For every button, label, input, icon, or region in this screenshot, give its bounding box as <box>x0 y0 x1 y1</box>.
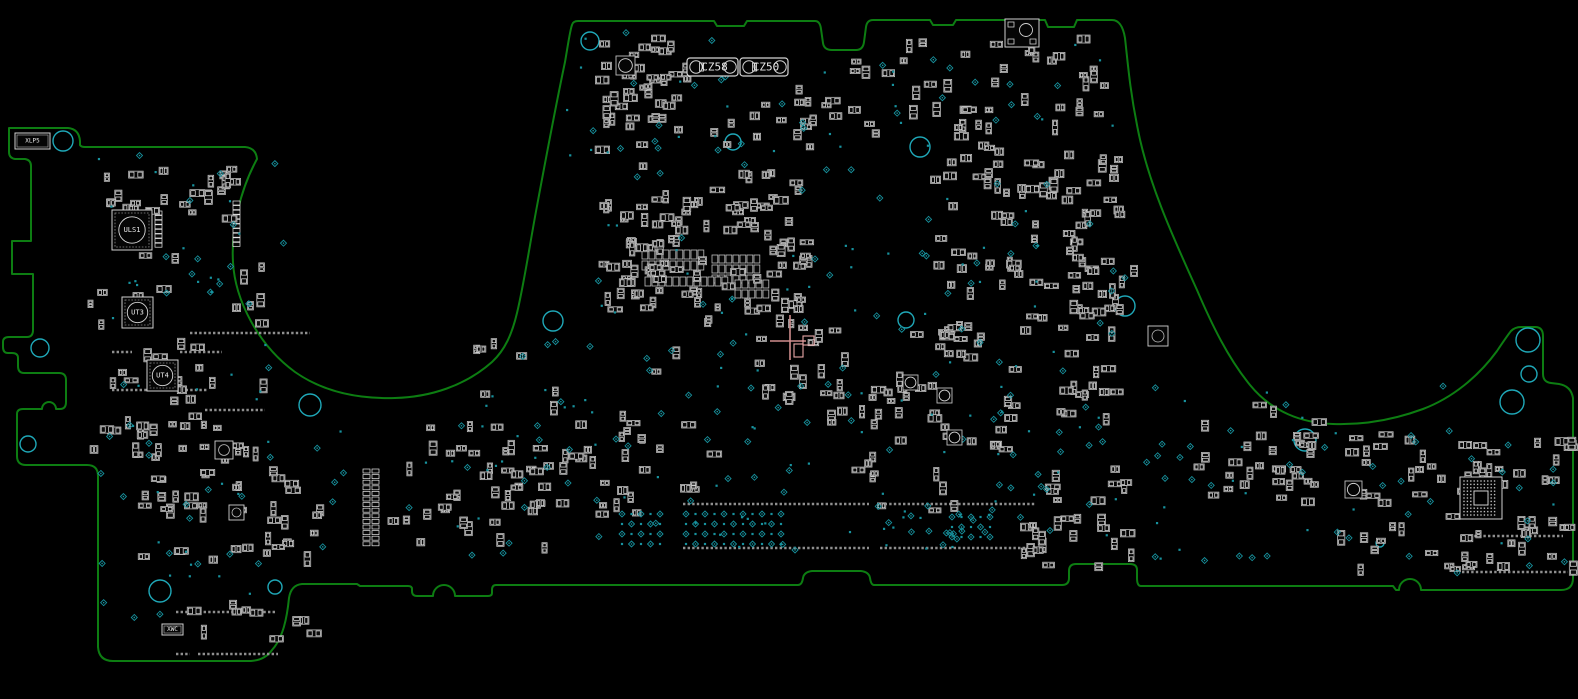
component[interactable] <box>1462 552 1468 562</box>
test-point[interactable] <box>217 281 223 287</box>
test-point[interactable] <box>1099 59 1101 61</box>
component[interactable] <box>940 482 947 495</box>
component[interactable] <box>622 450 629 462</box>
component[interactable] <box>649 265 662 271</box>
component[interactable] <box>1346 449 1359 456</box>
component[interactable] <box>601 62 611 69</box>
component[interactable] <box>826 97 841 104</box>
component[interactable] <box>1349 436 1363 441</box>
component[interactable] <box>693 271 700 282</box>
test-point[interactable] <box>979 536 981 538</box>
test-point[interactable] <box>740 511 746 517</box>
component[interactable] <box>1104 197 1117 202</box>
test-point[interactable] <box>584 399 586 401</box>
test-point[interactable] <box>1249 555 1255 561</box>
test-point[interactable] <box>136 284 138 286</box>
component[interactable] <box>788 238 795 251</box>
component[interactable] <box>862 66 870 78</box>
component-cz50[interactable]: CZ50 <box>740 58 788 76</box>
component[interactable] <box>1497 563 1509 571</box>
component[interactable] <box>269 467 277 476</box>
component[interactable] <box>961 154 972 161</box>
component[interactable] <box>1194 464 1204 470</box>
component[interactable] <box>1077 35 1090 43</box>
test-point[interactable] <box>99 560 105 566</box>
component[interactable] <box>629 242 634 256</box>
component[interactable] <box>715 304 720 311</box>
component[interactable] <box>954 336 967 341</box>
component[interactable] <box>233 484 240 490</box>
component[interactable] <box>984 145 994 150</box>
test-point[interactable] <box>267 454 273 460</box>
test-point[interactable] <box>829 133 831 135</box>
component[interactable] <box>1301 498 1314 506</box>
component[interactable] <box>992 78 999 87</box>
component[interactable] <box>1476 531 1481 538</box>
test-point[interactable] <box>157 611 163 617</box>
component[interactable] <box>1508 540 1515 547</box>
test-point[interactable] <box>607 151 609 153</box>
test-point[interactable] <box>860 392 862 394</box>
test-point[interactable] <box>621 543 623 545</box>
test-point[interactable] <box>694 513 696 515</box>
component[interactable] <box>1058 325 1067 330</box>
test-point[interactable] <box>648 541 654 547</box>
component[interactable] <box>619 279 631 287</box>
component[interactable] <box>993 161 1003 168</box>
inductor-component[interactable] <box>947 430 962 445</box>
test-point[interactable] <box>1264 553 1270 559</box>
test-point[interactable] <box>931 414 933 416</box>
component[interactable] <box>644 84 652 89</box>
component[interactable] <box>1005 414 1017 421</box>
component[interactable] <box>1307 450 1314 458</box>
test-point[interactable] <box>700 301 706 307</box>
component[interactable] <box>628 492 634 502</box>
test-point[interactable] <box>137 153 143 159</box>
test-point[interactable] <box>1028 430 1030 432</box>
component[interactable] <box>1111 466 1120 473</box>
component[interactable] <box>1115 211 1125 217</box>
component-ic[interactable] <box>1460 477 1502 519</box>
test-point[interactable] <box>704 543 706 545</box>
component[interactable] <box>954 133 968 140</box>
test-point[interactable] <box>969 415 971 417</box>
component[interactable] <box>1076 107 1083 116</box>
component[interactable] <box>690 201 698 207</box>
component[interactable] <box>895 408 902 418</box>
component[interactable] <box>706 316 712 323</box>
component[interactable] <box>931 176 941 183</box>
test-point[interactable] <box>584 38 586 40</box>
component[interactable] <box>1065 350 1078 357</box>
component[interactable] <box>1553 455 1559 465</box>
component[interactable] <box>1100 83 1108 89</box>
test-point[interactable] <box>729 296 735 302</box>
component[interactable] <box>765 230 771 240</box>
component[interactable] <box>161 506 173 511</box>
test-point[interactable] <box>1008 102 1014 108</box>
test-point[interactable] <box>908 529 914 535</box>
component[interactable] <box>623 260 632 267</box>
test-point[interactable] <box>989 526 991 528</box>
component[interactable] <box>1062 196 1073 204</box>
test-point[interactable] <box>239 493 245 499</box>
component[interactable] <box>271 502 276 516</box>
test-point[interactable] <box>1115 498 1117 500</box>
component[interactable] <box>704 220 709 232</box>
component[interactable] <box>429 441 437 455</box>
component[interactable] <box>201 625 206 639</box>
test-point[interactable] <box>960 516 962 518</box>
component[interactable] <box>1474 443 1487 449</box>
component[interactable] <box>919 39 927 47</box>
test-point[interactable] <box>339 430 341 432</box>
test-point[interactable] <box>458 423 464 429</box>
test-point[interactable] <box>506 540 512 546</box>
test-point[interactable] <box>580 66 582 68</box>
test-point[interactable] <box>715 147 721 153</box>
component[interactable] <box>502 502 514 509</box>
component[interactable] <box>569 453 584 459</box>
test-point[interactable] <box>1552 503 1554 505</box>
test-point[interactable] <box>778 511 784 517</box>
component[interactable] <box>955 124 963 130</box>
test-point[interactable] <box>849 531 851 533</box>
component[interactable] <box>115 190 122 201</box>
test-point[interactable] <box>1008 251 1014 257</box>
test-point[interactable] <box>721 312 723 314</box>
test-point[interactable] <box>638 531 644 537</box>
component[interactable] <box>530 468 544 475</box>
component[interactable] <box>490 519 500 525</box>
test-point[interactable] <box>1098 417 1100 419</box>
component[interactable] <box>265 532 270 545</box>
component[interactable] <box>1308 442 1316 450</box>
test-point[interactable] <box>1232 480 1234 482</box>
component[interactable] <box>850 68 860 73</box>
component[interactable] <box>900 58 907 64</box>
test-point[interactable] <box>1053 351 1055 353</box>
component[interactable] <box>909 105 917 119</box>
test-point[interactable] <box>634 174 640 180</box>
component[interactable] <box>645 90 652 98</box>
component[interactable] <box>652 369 661 374</box>
component[interactable] <box>186 395 195 403</box>
test-point[interactable] <box>892 71 894 73</box>
component-uls1[interactable]: ULS1 <box>112 210 152 250</box>
test-point[interactable] <box>595 278 601 284</box>
test-point[interactable] <box>779 101 785 107</box>
component[interactable] <box>776 315 783 327</box>
component[interactable] <box>1080 313 1094 319</box>
test-point[interactable] <box>851 248 853 250</box>
component[interactable] <box>230 600 237 609</box>
component[interactable] <box>227 166 237 172</box>
test-point[interactable] <box>939 95 945 101</box>
component[interactable] <box>169 421 177 426</box>
component[interactable] <box>647 75 659 80</box>
component[interactable] <box>533 445 547 451</box>
component[interactable] <box>257 294 265 307</box>
component[interactable] <box>427 425 435 431</box>
component[interactable] <box>497 534 504 547</box>
component[interactable] <box>1120 480 1131 486</box>
component[interactable] <box>652 241 664 247</box>
test-point[interactable] <box>1033 494 1035 496</box>
component[interactable] <box>754 274 761 283</box>
component[interactable] <box>600 202 608 209</box>
component[interactable] <box>1519 542 1526 555</box>
component[interactable] <box>663 102 675 109</box>
component[interactable] <box>1115 156 1123 162</box>
component[interactable] <box>241 270 248 284</box>
test-point[interactable] <box>572 405 574 407</box>
test-point[interactable] <box>625 443 631 449</box>
test-point[interactable] <box>553 339 559 345</box>
component[interactable] <box>259 263 265 272</box>
component[interactable] <box>1293 432 1300 440</box>
component[interactable] <box>511 471 523 478</box>
component[interactable] <box>1070 300 1078 313</box>
test-point[interactable] <box>877 195 883 201</box>
test-point[interactable] <box>1000 386 1002 388</box>
test-point[interactable] <box>895 105 897 107</box>
test-point[interactable] <box>1352 508 1354 510</box>
test-point[interactable] <box>723 543 725 545</box>
test-point[interactable] <box>469 552 475 558</box>
test-point[interactable] <box>1074 44 1076 46</box>
test-point[interactable] <box>730 340 736 346</box>
test-point[interactable] <box>182 247 184 249</box>
test-point[interactable] <box>804 419 810 425</box>
component[interactable] <box>637 204 648 209</box>
component[interactable] <box>242 607 251 613</box>
test-point[interactable] <box>451 460 453 462</box>
test-point[interactable] <box>979 516 981 518</box>
component[interactable] <box>699 257 707 265</box>
test-point[interactable] <box>158 541 160 543</box>
component[interactable] <box>871 420 877 429</box>
test-point[interactable] <box>983 247 985 249</box>
test-point[interactable] <box>1079 426 1081 428</box>
component[interactable] <box>806 144 813 150</box>
test-point[interactable] <box>968 534 974 540</box>
component[interactable] <box>772 289 779 301</box>
component[interactable] <box>795 99 804 106</box>
component[interactable] <box>1053 120 1058 135</box>
test-point[interactable] <box>887 447 893 453</box>
test-point[interactable] <box>1025 210 1027 212</box>
test-point[interactable] <box>1152 554 1158 560</box>
component[interactable] <box>653 276 666 283</box>
test-point[interactable] <box>330 499 336 505</box>
component[interactable] <box>204 191 212 205</box>
component[interactable] <box>467 421 472 431</box>
component[interactable] <box>739 170 749 178</box>
component[interactable] <box>138 554 149 560</box>
component[interactable] <box>417 539 425 546</box>
test-point[interactable] <box>714 135 716 137</box>
test-point[interactable] <box>781 489 787 495</box>
test-point[interactable] <box>146 440 152 446</box>
test-point[interactable] <box>996 359 1002 365</box>
test-point[interactable] <box>1177 454 1183 460</box>
component[interactable] <box>1091 70 1098 83</box>
component[interactable] <box>600 480 609 485</box>
component[interactable] <box>668 41 674 52</box>
component[interactable] <box>928 415 942 422</box>
test-point[interactable] <box>848 167 854 173</box>
component[interactable] <box>150 424 157 435</box>
test-point[interactable] <box>1398 478 1404 484</box>
component[interactable] <box>906 39 912 52</box>
component[interactable] <box>201 421 206 428</box>
component[interactable] <box>1077 99 1082 107</box>
component[interactable] <box>250 609 263 616</box>
test-point[interactable] <box>1241 446 1243 448</box>
component[interactable] <box>986 260 994 267</box>
component[interactable] <box>1247 467 1253 479</box>
test-point[interactable] <box>930 57 936 63</box>
component[interactable] <box>1466 561 1477 567</box>
test-point[interactable] <box>1058 449 1064 455</box>
component[interactable] <box>781 298 788 312</box>
test-point[interactable] <box>267 441 269 443</box>
component[interactable] <box>965 323 972 331</box>
component[interactable] <box>790 180 803 186</box>
component[interactable] <box>1067 188 1081 194</box>
component[interactable] <box>777 117 787 123</box>
component[interactable] <box>1128 549 1134 562</box>
test-point[interactable] <box>1144 459 1150 465</box>
component[interactable] <box>1208 492 1219 498</box>
component-cz58[interactable]: CZ58 <box>687 58 738 76</box>
component[interactable] <box>270 636 284 642</box>
test-point[interactable] <box>892 526 894 528</box>
component[interactable] <box>670 267 683 273</box>
component[interactable] <box>1038 531 1045 545</box>
pcb-boardview-canvas[interactable]: CZ58CZ50ULS1UT3UT4XLP5XWC <box>0 0 1578 699</box>
component[interactable] <box>841 353 848 367</box>
test-point[interactable] <box>678 136 680 138</box>
test-point[interactable] <box>786 467 792 473</box>
test-point[interactable] <box>564 406 566 408</box>
component[interactable] <box>173 491 179 502</box>
component[interactable] <box>552 387 558 396</box>
test-point[interactable] <box>1015 365 1017 367</box>
component-ic[interactable] <box>229 505 244 520</box>
component[interactable] <box>137 432 148 439</box>
inductor-component[interactable] <box>903 375 918 390</box>
test-point[interactable] <box>485 405 487 407</box>
component[interactable] <box>762 102 770 107</box>
component[interactable] <box>652 221 663 228</box>
test-point[interactable] <box>693 541 699 547</box>
component[interactable] <box>1103 414 1109 425</box>
test-point[interactable] <box>960 536 962 538</box>
component[interactable] <box>1201 453 1209 463</box>
test-point[interactable] <box>1561 559 1567 565</box>
component[interactable] <box>603 106 610 119</box>
test-point[interactable] <box>221 483 223 485</box>
component[interactable] <box>1408 468 1413 481</box>
test-point[interactable] <box>655 145 661 151</box>
component[interactable] <box>281 515 288 529</box>
test-point[interactable] <box>773 150 775 152</box>
test-point[interactable] <box>128 282 130 284</box>
component[interactable] <box>951 501 958 512</box>
test-point[interactable] <box>996 482 1002 488</box>
component[interactable] <box>214 425 222 430</box>
component[interactable] <box>1111 538 1117 549</box>
test-point[interactable] <box>1034 113 1040 119</box>
component[interactable] <box>263 550 270 557</box>
component[interactable] <box>957 350 966 357</box>
component[interactable] <box>1025 185 1039 192</box>
component[interactable] <box>185 503 198 509</box>
test-point[interactable] <box>640 543 642 545</box>
test-point[interactable] <box>713 513 715 515</box>
component[interactable] <box>1043 562 1055 568</box>
component[interactable] <box>1362 459 1370 465</box>
component[interactable] <box>1310 482 1318 488</box>
component[interactable] <box>777 244 785 256</box>
test-point[interactable] <box>962 263 964 265</box>
test-point[interactable] <box>619 511 625 517</box>
component[interactable] <box>407 462 412 476</box>
component-ut4[interactable]: UT4 <box>147 360 178 391</box>
component[interactable] <box>196 364 203 371</box>
component[interactable] <box>682 291 693 297</box>
component[interactable] <box>171 397 178 405</box>
test-point[interactable] <box>824 71 826 73</box>
component[interactable] <box>610 92 618 106</box>
component[interactable] <box>639 163 647 170</box>
test-point[interactable] <box>861 431 863 433</box>
test-point[interactable] <box>747 518 749 520</box>
component[interactable] <box>786 391 793 404</box>
test-point[interactable] <box>101 600 107 606</box>
component[interactable] <box>1109 174 1118 181</box>
test-point[interactable] <box>189 271 195 277</box>
test-point[interactable] <box>500 550 506 556</box>
test-point[interactable] <box>745 333 747 335</box>
component[interactable] <box>1095 563 1103 571</box>
component[interactable] <box>491 339 496 349</box>
test-point[interactable] <box>808 286 810 288</box>
test-point[interactable] <box>725 476 731 482</box>
component[interactable] <box>200 508 206 522</box>
component[interactable] <box>985 169 993 178</box>
test-point[interactable] <box>146 452 152 458</box>
component[interactable] <box>1054 517 1061 530</box>
component[interactable] <box>726 205 740 211</box>
component[interactable] <box>785 218 793 226</box>
component[interactable] <box>652 35 666 42</box>
test-point[interactable] <box>925 547 927 549</box>
test-point[interactable] <box>659 543 661 545</box>
component[interactable] <box>503 447 509 454</box>
test-point[interactable] <box>619 531 625 537</box>
test-point[interactable] <box>802 319 808 325</box>
component[interactable] <box>1053 52 1065 60</box>
component[interactable] <box>750 112 759 120</box>
test-point[interactable] <box>740 531 746 537</box>
test-point[interactable] <box>491 395 493 397</box>
test-point[interactable] <box>745 439 751 445</box>
test-point[interactable] <box>720 367 722 369</box>
